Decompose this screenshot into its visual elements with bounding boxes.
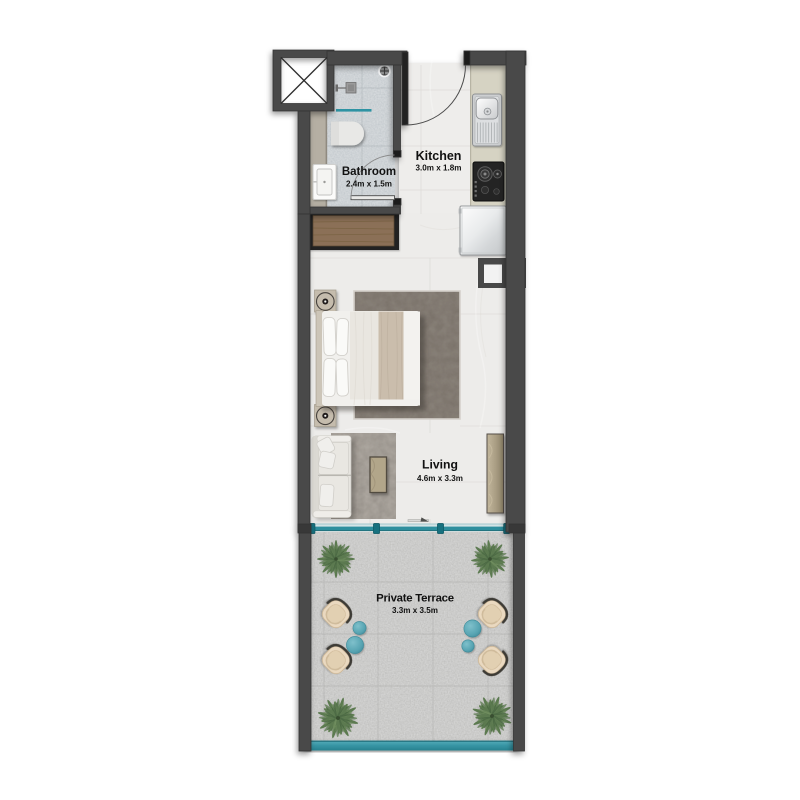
svg-text:Private Terrace: Private Terrace bbox=[376, 593, 454, 605]
svg-text:Living: Living bbox=[422, 458, 458, 472]
svg-text:Kitchen: Kitchen bbox=[416, 149, 462, 163]
svg-text:3.0m x 1.8m: 3.0m x 1.8m bbox=[416, 164, 462, 173]
svg-text:Bathroom: Bathroom bbox=[342, 166, 396, 178]
svg-text:4.6m x 3.3m: 4.6m x 3.3m bbox=[417, 474, 463, 483]
svg-text:2.4m x 1.5m: 2.4m x 1.5m bbox=[346, 180, 392, 189]
svg-text:3.3m x 3.5m: 3.3m x 3.5m bbox=[392, 606, 438, 615]
